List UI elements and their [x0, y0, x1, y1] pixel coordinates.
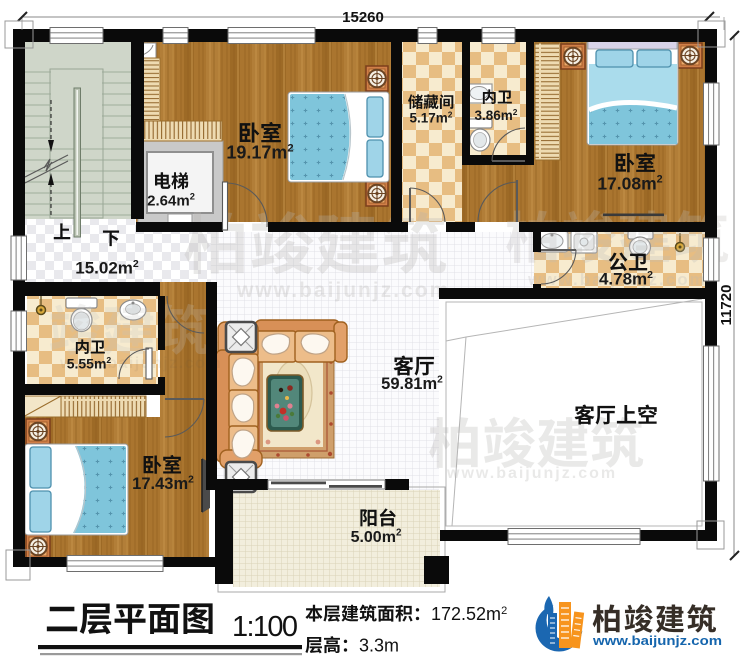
svg-text:3.3m: 3.3m	[359, 636, 399, 656]
svg-text:5.00m2: 5.00m2	[351, 528, 402, 546]
svg-text:2.64m2: 2.64m2	[147, 192, 195, 210]
svg-text:www.baijunjz.com: www.baijunjz.com	[446, 465, 617, 482]
svg-text:11720: 11720	[718, 285, 735, 326]
svg-text:5.55m2: 5.55m2	[67, 355, 112, 371]
svg-text:1:100: 1:100	[232, 611, 298, 643]
svg-text:15260: 15260	[342, 9, 384, 26]
svg-text:19.17m2: 19.17m2	[226, 143, 293, 163]
svg-text:www.baijunjz.com: www.baijunjz.com	[592, 633, 722, 648]
svg-text:17.43m2: 17.43m2	[132, 475, 194, 493]
svg-text:59.81m2: 59.81m2	[381, 375, 443, 393]
svg-text:3.86m2: 3.86m2	[475, 107, 518, 123]
svg-text:4.78m2: 4.78m2	[599, 269, 653, 289]
svg-text:www.baijunjz.com: www.baijunjz.com	[236, 279, 450, 302]
svg-text:172.52m2: 172.52m2	[431, 604, 507, 624]
svg-text:17.08m2: 17.08m2	[597, 173, 662, 193]
svg-text:5.17m2: 5.17m2	[410, 109, 453, 125]
svg-text:15.02m2: 15.02m2	[75, 258, 139, 278]
